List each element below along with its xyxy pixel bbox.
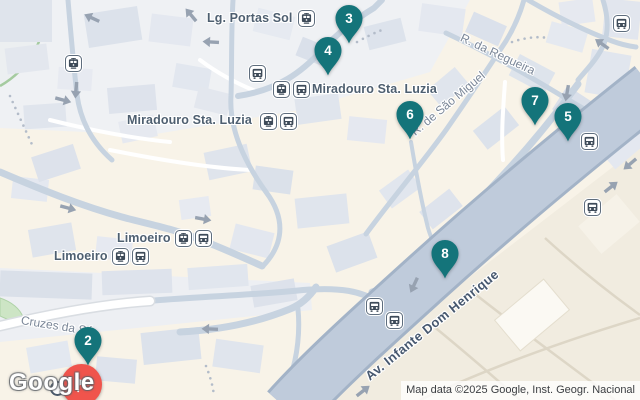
bus-stop-icon[interactable] [613, 15, 630, 32]
google-logo[interactable]: Google [9, 369, 95, 397]
tram-icon[interactable] [260, 113, 277, 130]
marker-number: 4 [313, 43, 343, 58]
marker-number: 6 [395, 107, 425, 122]
bus-icon[interactable] [195, 230, 212, 247]
place-label-miradouro-sta-luzia-2[interactable]: Miradouro Sta. Luzia [127, 113, 252, 127]
tram-icon[interactable] [298, 10, 315, 27]
marker-number: 2 [73, 333, 103, 348]
bus-stop-icon[interactable] [584, 199, 601, 216]
map-marker-4[interactable]: 4 [313, 36, 343, 76]
place-label-lg-portas-sol[interactable]: Lg. Portas Sol [207, 11, 292, 25]
map-viewport[interactable]: Cruzes da Sé R. da Regueira R. de São Mi… [0, 0, 640, 400]
tram-icon[interactable] [175, 230, 192, 247]
bus-icon[interactable] [280, 113, 297, 130]
bus-stop-icon[interactable] [581, 133, 598, 150]
map-marker-7[interactable]: 7 [520, 86, 550, 126]
bus-icon[interactable] [293, 81, 310, 98]
bus-stop-icon[interactable] [386, 312, 403, 329]
bus-stop-icon[interactable] [249, 65, 266, 82]
marker-number: 8 [430, 246, 460, 261]
marker-number: 5 [553, 109, 583, 124]
place-label-miradouro-sta-luzia-1[interactable]: Miradouro Sta. Luzia [312, 82, 437, 96]
map-marker-8[interactable]: 8 [430, 239, 460, 279]
place-label-limoeiro-2[interactable]: Limoeiro [54, 249, 108, 263]
map-attribution: Map data ©2025 Google, Inst. Geogr. Naci… [401, 381, 640, 400]
marker-number: 3 [334, 11, 364, 26]
place-label-limoeiro-1[interactable]: Limoeiro [117, 231, 171, 245]
bus-icon[interactable] [132, 248, 149, 265]
tram-stop-icon[interactable] [65, 55, 82, 72]
map-marker-2[interactable]: 2 [73, 326, 103, 366]
map-marker-5[interactable]: 5 [553, 102, 583, 142]
map-marker-6[interactable]: 6 [395, 100, 425, 140]
bus-stop-icon[interactable] [366, 298, 383, 315]
marker-number: 7 [520, 93, 550, 108]
tram-icon[interactable] [273, 81, 290, 98]
tram-icon[interactable] [112, 248, 129, 265]
